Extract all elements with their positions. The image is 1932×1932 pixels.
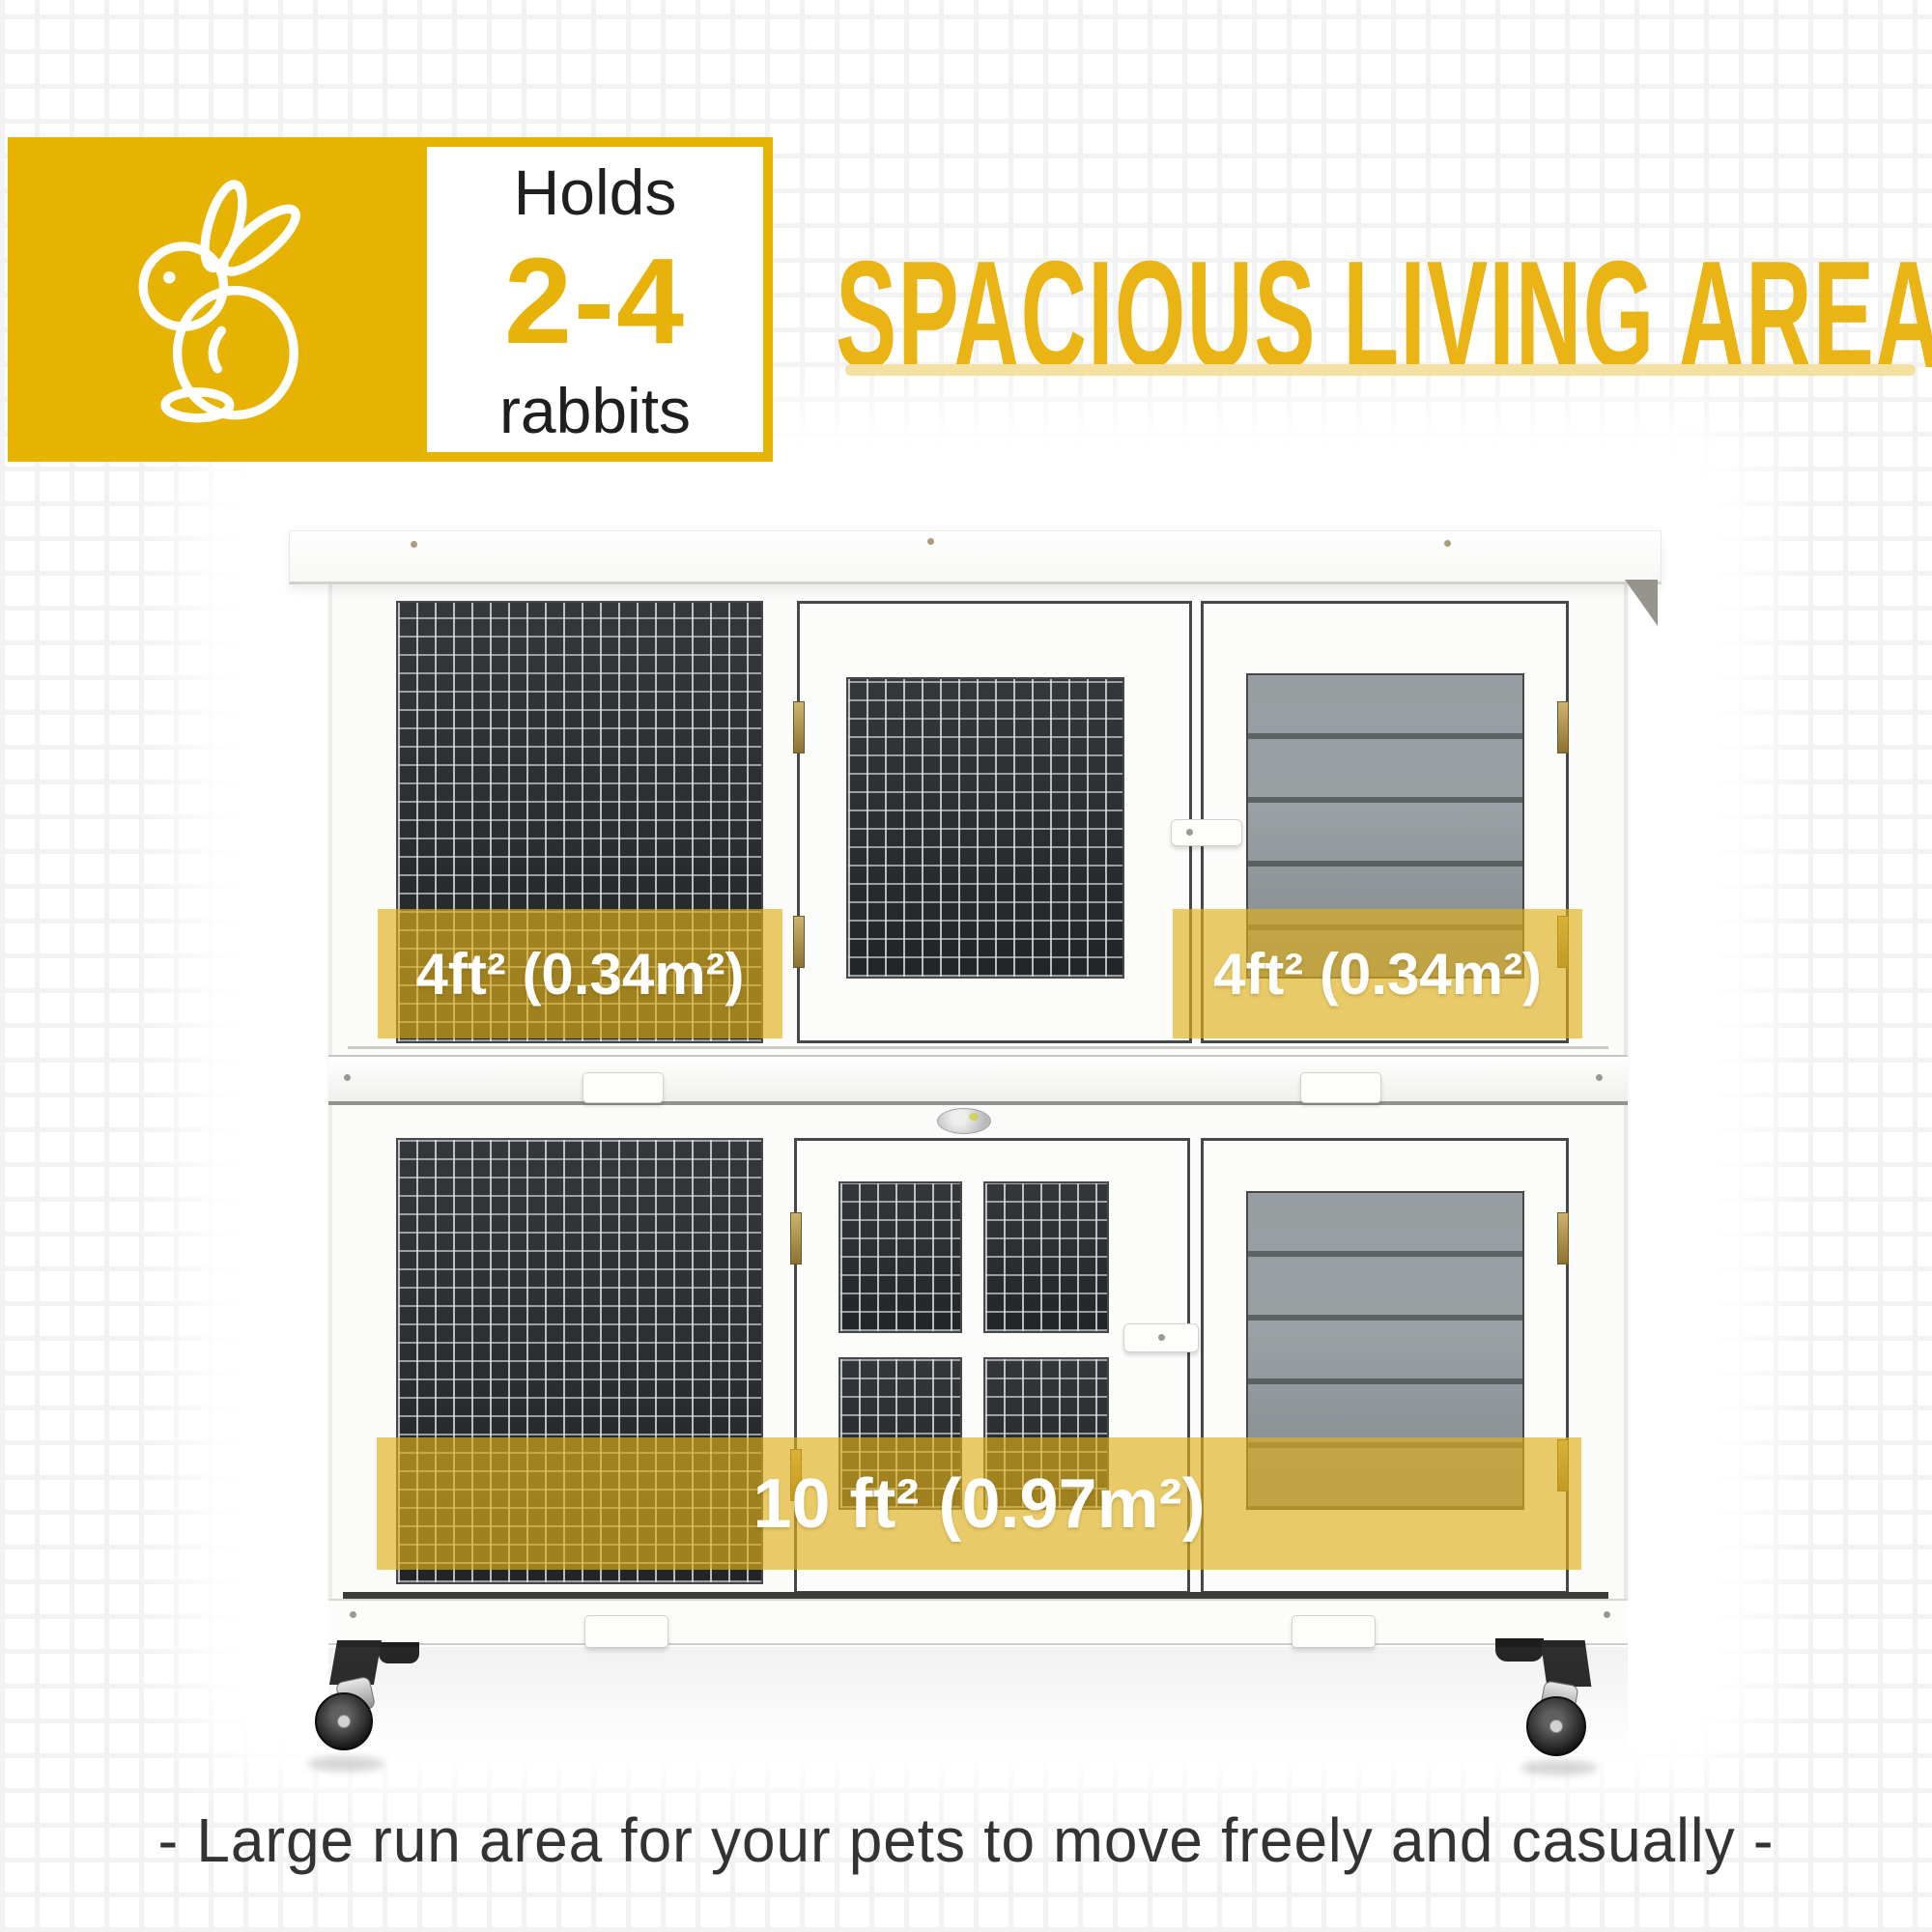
hinge-icon [1557, 1212, 1569, 1264]
capacity-value: 2-4 [504, 241, 686, 362]
pull-out-tray [328, 1055, 1628, 1105]
floor-reflection [328, 1647, 1628, 1792]
upper-right-area-label: 4ft² (0.34m²) [1213, 941, 1542, 1008]
lower-area-label: 10 ft² (0.97m²) [753, 1464, 1205, 1544]
brand-logo-accent [969, 1113, 979, 1121]
latch-screw [1186, 829, 1193, 836]
roof-screw [411, 541, 417, 548]
brand-logo-badge [937, 1108, 991, 1134]
rabbits-label: rabbits [499, 379, 691, 442]
base-screw [350, 1611, 356, 1618]
caption-text: - Large run area for your pets to move f… [29, 1804, 1903, 1876]
holds-label: Holds [514, 160, 677, 224]
capacity-badge-box: Holds 2-4 rabbits [417, 137, 773, 462]
roof-screw [927, 538, 934, 545]
base-screw [1604, 1611, 1610, 1618]
product-infographic: Holds 2-4 rabbits SPACIOUS LIVING AREA [0, 0, 1932, 1932]
lower-door-mesh-pane [983, 1181, 1109, 1333]
hinge-icon [793, 701, 805, 753]
capacity-badge-block [8, 137, 417, 462]
rabbit-icon [101, 172, 324, 428]
upper-left-area-label: 4ft² (0.34m²) [415, 941, 744, 1008]
upper-right-area-overlay: 4ft² (0.34m²) [1173, 909, 1582, 1038]
upper-left-area-overlay: 4ft² (0.34m²) [378, 909, 782, 1038]
upper-door-latch [1171, 819, 1242, 846]
hinge-icon [793, 916, 805, 968]
base-board [328, 1599, 1628, 1645]
hutch-roof [289, 530, 1662, 584]
upper-door-mesh-window [846, 677, 1124, 979]
wheel-reflection [1520, 1760, 1598, 1776]
lower-area-overlay: 10 ft² (0.97m²) [377, 1437, 1581, 1570]
hinge-icon [1557, 701, 1569, 753]
upper-center-mesh-door [797, 601, 1192, 1043]
tray-handle [1300, 1072, 1381, 1103]
tray-screw [344, 1074, 351, 1081]
base-shadow-line [343, 1592, 1608, 1599]
floor-divider-line [348, 1046, 1608, 1049]
wheel-reflection [307, 1756, 384, 1772]
title-underline [845, 364, 1916, 376]
base-handle [1292, 1615, 1376, 1648]
tray-screw [1596, 1074, 1603, 1081]
lower-door-mesh-pane [838, 1181, 962, 1333]
tray-handle [582, 1072, 664, 1103]
hinge-icon [790, 1212, 802, 1264]
latch-screw [1158, 1334, 1165, 1341]
roof-screw [1444, 540, 1451, 547]
base-handle [584, 1615, 668, 1648]
